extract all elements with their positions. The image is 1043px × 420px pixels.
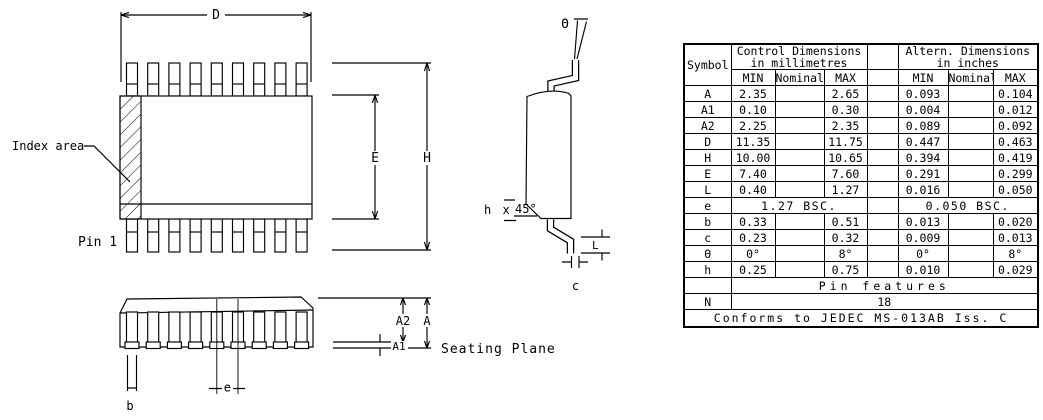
dim-label-c: c <box>572 279 579 293</box>
dim-label-e-pitch: e <box>224 381 231 395</box>
dimension-c <box>562 256 588 268</box>
dimensions-table: Symbol Control Dimensions in millimetres… <box>683 43 1039 328</box>
top-view-pins-upper <box>127 63 308 96</box>
dim-label-l: L <box>592 239 599 252</box>
table-row: A2.352.650.0930.104 <box>684 86 1038 102</box>
symbol-column-header: Symbol <box>684 44 731 86</box>
theta-angle-wedge <box>574 19 588 59</box>
dim-label-a1: A1 <box>392 340 405 353</box>
index-area-hatch <box>120 96 141 219</box>
dimension-b <box>128 355 137 391</box>
top-view <box>84 12 312 252</box>
theta-label: Θ <box>561 17 569 32</box>
pin1-label: Pin 1 <box>78 235 117 250</box>
table-row: b0.330.510.0130.020 <box>684 214 1038 230</box>
top-view-pins-lower <box>127 219 308 252</box>
table-row: A10.100.300.0040.012 <box>684 102 1038 118</box>
index-area-label: Index area <box>12 139 84 153</box>
table-row-e-bsc: e 1.27 BSC. 0.050 BSC. <box>684 198 1038 214</box>
seating-plane-label: Seating Plane <box>441 342 556 357</box>
dim-label-a: A <box>423 314 431 328</box>
table-row: E7.407.600.2910.299 <box>684 166 1038 182</box>
package-drawing: D Index area Pin 1 E H Θ h x 45° L c A2 … <box>0 0 683 420</box>
side-view <box>504 19 610 268</box>
table-header-titles: Symbol Control Dimensions in millimetres… <box>684 44 1038 70</box>
dimension-e-h <box>332 63 433 250</box>
dim-label-d: D <box>212 8 220 23</box>
front-view <box>120 297 433 394</box>
table-header-minmax: MIN Nominal MAX MIN Nominal MAX <box>684 70 1038 86</box>
dimension-a-a1-a2 <box>318 298 433 356</box>
chamfer-label-prefix: h x <box>484 203 512 217</box>
table-row: H10.0010.650.3940.419 <box>684 150 1038 166</box>
altern-dimensions-header: Altern. Dimensions in inches <box>898 44 1038 70</box>
datasheet-package-outline-page: D Index area Pin 1 E H Θ h x 45° L c A2 … <box>0 0 1043 420</box>
bottom-lead <box>551 220 571 254</box>
gap-cell <box>867 70 898 86</box>
table-row: Θ0°8°0°8° <box>684 246 1038 262</box>
chamfer-label-angle: 45° <box>515 202 537 216</box>
table-row: c0.230.320.0090.013 <box>684 230 1038 246</box>
table-row-pin-features: Pin features <box>684 278 1038 294</box>
table-row: L0.401.270.0160.050 <box>684 182 1038 198</box>
top-lead <box>551 60 576 93</box>
package-body-top-view <box>120 96 312 219</box>
dim-label-b: b <box>126 399 133 413</box>
table-row-jedec-note: Conforms to JEDEC MS-013AB Iss. C <box>684 310 1038 328</box>
dim-label-a2: A2 <box>396 314 410 328</box>
control-dimensions-header: Control Dimensions in millimetres <box>731 44 867 70</box>
table-row: A22.252.350.0890.092 <box>684 118 1038 134</box>
table-row: h0.250.750.0100.029 <box>684 262 1038 278</box>
dim-label-h: H <box>423 151 431 166</box>
table-row: D11.3511.750.4470.463 <box>684 134 1038 150</box>
table-row-pin-count: N 18 <box>684 294 1038 310</box>
gap-cell <box>867 44 898 70</box>
dim-label-e: E <box>371 151 379 166</box>
package-body-side-view <box>526 91 571 218</box>
